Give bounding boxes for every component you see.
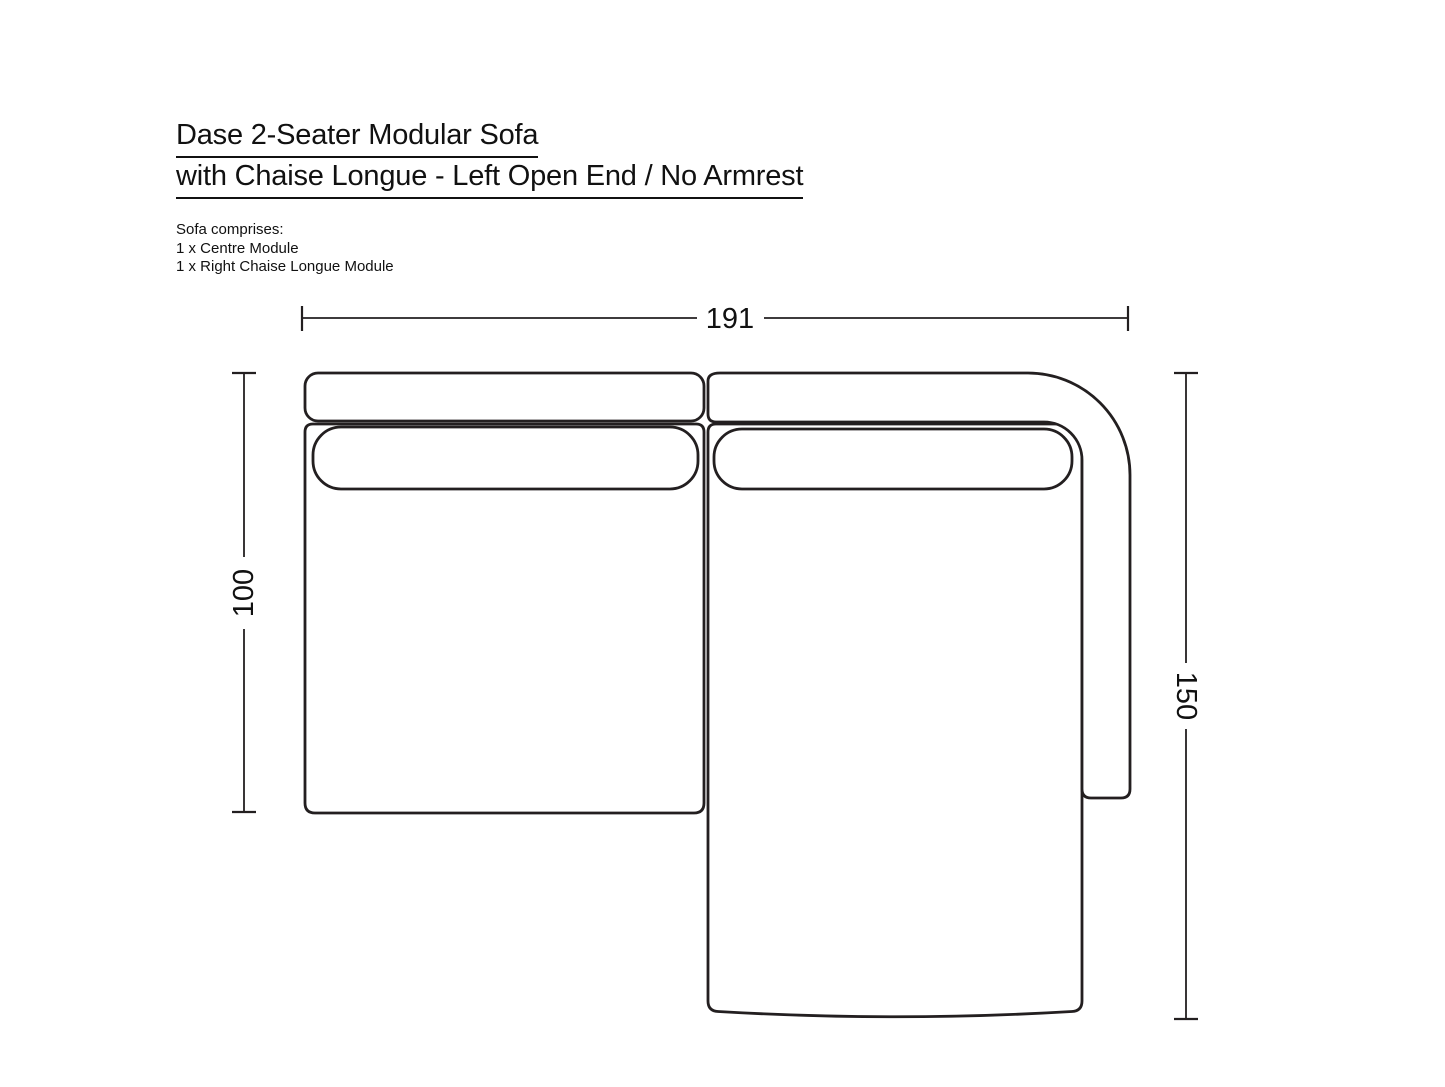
dimension-chaise-depth: 150: [1170, 373, 1202, 1019]
chaise-seat-outline: [708, 424, 1082, 1017]
chaise-cushion-outline: [714, 429, 1072, 489]
width-dimension-label: 191: [706, 303, 754, 335]
dimension-centre-depth: 100: [228, 373, 260, 812]
sofa-dimension-diagram: 191 100 150: [0, 0, 1445, 1087]
sofa-drawing: [305, 373, 1130, 1017]
centre-module: [305, 373, 704, 813]
chaise-longue-module: [708, 373, 1130, 1017]
left-dimension-label: 100: [228, 569, 260, 617]
dimension-overall-width: 191: [302, 303, 1128, 335]
page-root: Dase 2-Seater Modular Sofa with Chaise L…: [0, 0, 1445, 1087]
centre-module-backrest-outline: [305, 373, 704, 421]
centre-module-cushion-outline: [313, 427, 698, 489]
right-dimension-label: 150: [1170, 672, 1202, 720]
